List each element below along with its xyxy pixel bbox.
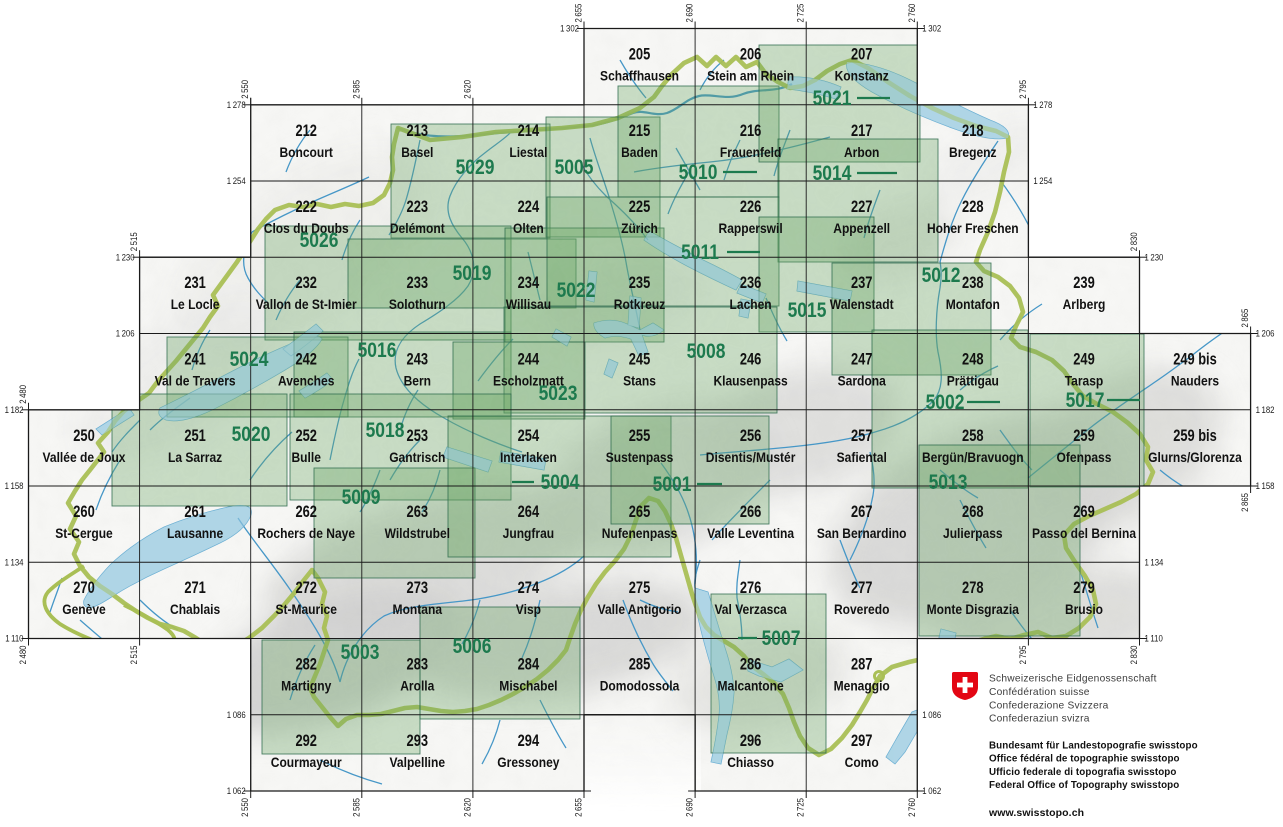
svg-text:Basel: Basel [401, 144, 433, 160]
svg-text:258: 258 [962, 427, 984, 445]
svg-text:283: 283 [407, 656, 429, 674]
svg-text:1 302: 1 302 [922, 24, 941, 35]
svg-text:Liestal: Liestal [509, 144, 547, 160]
svg-text:Courmayeur: Courmayeur [271, 754, 342, 770]
svg-text:St-Cergue: St-Cergue [55, 525, 113, 541]
svg-text:282: 282 [295, 656, 317, 674]
svg-text:Passo del Bernina: Passo del Bernina [1032, 525, 1136, 541]
svg-text:5023: 5023 [539, 382, 578, 405]
svg-text:273: 273 [407, 579, 429, 597]
svg-text:297: 297 [851, 732, 873, 750]
svg-text:286: 286 [740, 656, 762, 674]
svg-text:222: 222 [295, 198, 317, 216]
svg-text:253: 253 [407, 427, 429, 445]
svg-text:2 725: 2 725 [796, 798, 807, 817]
svg-text:276: 276 [740, 579, 762, 597]
svg-text:206: 206 [740, 46, 762, 64]
svg-text:La Sarraz: La Sarraz [168, 449, 222, 465]
svg-text:5011: 5011 [681, 241, 719, 264]
svg-text:1 230: 1 230 [116, 252, 135, 263]
svg-text:259 bis: 259 bis [1173, 427, 1217, 445]
svg-text:2 795: 2 795 [1018, 646, 1029, 665]
svg-text:271: 271 [184, 579, 206, 597]
svg-text:Confederazione Svizzera: Confederazione Svizzera [989, 700, 1109, 711]
svg-text:1 302: 1 302 [560, 24, 579, 35]
svg-text:292: 292 [295, 732, 317, 750]
svg-text:5021: 5021 [813, 87, 852, 110]
svg-text:Klausenpass: Klausenpass [713, 373, 787, 389]
svg-text:2 515: 2 515 [129, 646, 140, 665]
svg-text:249: 249 [1073, 351, 1095, 369]
svg-text:Brusio: Brusio [1065, 601, 1103, 617]
svg-text:241: 241 [184, 351, 206, 369]
svg-text:2 865: 2 865 [1240, 309, 1251, 328]
svg-text:5022: 5022 [557, 279, 596, 302]
svg-text:Walenstadt: Walenstadt [830, 296, 894, 312]
svg-text:2 690: 2 690 [685, 798, 696, 817]
svg-text:294: 294 [518, 732, 540, 750]
svg-text:Chiasso: Chiasso [727, 754, 774, 770]
svg-text:5006: 5006 [453, 635, 492, 658]
svg-text:216: 216 [740, 122, 762, 140]
svg-text:251: 251 [184, 427, 206, 445]
svg-text:226: 226 [740, 198, 762, 216]
svg-text:5010: 5010 [679, 161, 718, 184]
svg-text:Tarasp: Tarasp [1065, 373, 1104, 389]
svg-text:266: 266 [740, 503, 762, 521]
svg-text:Valpelline: Valpelline [390, 754, 446, 770]
svg-text:217: 217 [851, 122, 873, 140]
svg-text:Valle Leventina: Valle Leventina [707, 525, 794, 541]
svg-text:265: 265 [629, 503, 651, 521]
svg-text:255: 255 [629, 427, 651, 445]
svg-text:Ofenpass: Ofenpass [1057, 449, 1112, 465]
svg-text:St-Maurice: St-Maurice [275, 601, 337, 617]
svg-text:1 278: 1 278 [227, 100, 246, 111]
svg-text:272: 272 [295, 579, 317, 597]
svg-text:Confédération suisse: Confédération suisse [989, 687, 1090, 698]
svg-text:5020: 5020 [232, 423, 271, 446]
svg-text:5012: 5012 [922, 264, 961, 287]
svg-text:5018: 5018 [366, 419, 405, 442]
svg-text:Arbon: Arbon [844, 144, 879, 160]
svg-text:Interlaken: Interlaken [500, 449, 557, 465]
svg-text:Montafon: Montafon [946, 296, 1000, 312]
svg-text:Visp: Visp [516, 601, 541, 617]
svg-text:Genève: Genève [62, 601, 106, 617]
svg-text:Federal Office of Topography s: Federal Office of Topography swisstopo [989, 780, 1179, 791]
svg-text:Chablais: Chablais [170, 601, 220, 617]
svg-text:2 550: 2 550 [240, 80, 251, 99]
svg-text:Bergün/Bravuogn: Bergün/Bravuogn [922, 449, 1024, 465]
svg-text:Disentis/Mustér: Disentis/Mustér [706, 449, 796, 465]
svg-text:224: 224 [518, 198, 540, 216]
svg-text:242: 242 [295, 351, 317, 369]
svg-text:Valle Antigorio: Valle Antigorio [598, 601, 682, 617]
svg-text:Baden: Baden [621, 144, 658, 160]
svg-text:231: 231 [184, 274, 206, 292]
svg-text:257: 257 [851, 427, 873, 445]
svg-text:1 230: 1 230 [1145, 252, 1164, 263]
svg-text:2 655: 2 655 [574, 4, 585, 23]
svg-text:Vallée de Joux: Vallée de Joux [43, 449, 126, 465]
svg-text:5016: 5016 [358, 339, 397, 362]
svg-text:Safiental: Safiental [837, 449, 887, 465]
svg-text:5017: 5017 [1066, 389, 1105, 412]
svg-text:239: 239 [1073, 274, 1095, 292]
svg-text:Bundesamt für Landestopografie: Bundesamt für Landestopografie swisstopo [989, 741, 1198, 752]
svg-text:2 865: 2 865 [1240, 493, 1251, 512]
svg-text:Domodossola: Domodossola [600, 678, 680, 694]
svg-text:Como: Como [845, 754, 879, 770]
svg-text:1 086: 1 086 [922, 710, 941, 721]
svg-text:Avenches: Avenches [278, 373, 335, 389]
svg-text:205: 205 [629, 46, 651, 64]
svg-text:269: 269 [1073, 503, 1095, 521]
svg-text:261: 261 [184, 503, 206, 521]
svg-text:2 515: 2 515 [129, 232, 140, 251]
svg-text:Val Verzasca: Val Verzasca [714, 601, 786, 617]
svg-text:2 620: 2 620 [462, 80, 473, 99]
svg-text:Delémont: Delémont [390, 220, 445, 236]
svg-text:237: 237 [851, 274, 873, 292]
svg-text:214: 214 [518, 122, 540, 140]
svg-text:256: 256 [740, 427, 762, 445]
svg-text:5003: 5003 [341, 641, 380, 664]
svg-text:213: 213 [407, 122, 429, 140]
svg-text:Gressoney: Gressoney [497, 754, 559, 770]
svg-text:270: 270 [73, 579, 95, 597]
svg-text:264: 264 [518, 503, 540, 521]
svg-text:227: 227 [851, 198, 873, 216]
svg-text:1 134: 1 134 [5, 558, 24, 569]
svg-text:2 760: 2 760 [907, 798, 918, 817]
svg-text:Office fédéral de topographie: Office fédéral de topographie swisstopo [989, 754, 1180, 765]
svg-text:235: 235 [629, 274, 651, 292]
svg-text:1 062: 1 062 [922, 786, 941, 797]
svg-text:262: 262 [295, 503, 317, 521]
svg-text:285: 285 [629, 656, 651, 674]
svg-text:Konstanz: Konstanz [835, 68, 889, 84]
svg-text:5019: 5019 [453, 262, 492, 285]
svg-text:2 760: 2 760 [907, 4, 918, 23]
svg-text:207: 207 [851, 46, 873, 64]
svg-text:Stans: Stans [623, 373, 656, 389]
svg-text:Lausanne: Lausanne [167, 525, 223, 541]
svg-text:225: 225 [629, 198, 651, 216]
svg-text:1 182: 1 182 [5, 405, 24, 416]
svg-text:243: 243 [407, 351, 429, 369]
svg-text:Val de Travers: Val de Travers [155, 373, 236, 389]
svg-text:Wildstrubel: Wildstrubel [385, 525, 450, 541]
svg-text:Hoher Freschen: Hoher Freschen [927, 220, 1019, 236]
svg-text:Roveredo: Roveredo [834, 601, 890, 617]
svg-text:212: 212 [295, 122, 317, 140]
svg-text:Bern: Bern [404, 373, 431, 389]
svg-text:Boncourt: Boncourt [279, 144, 333, 160]
svg-text:268: 268 [962, 503, 984, 521]
svg-text:San Bernardino: San Bernardino [817, 525, 907, 541]
svg-text:254: 254 [518, 427, 540, 445]
svg-text:284: 284 [518, 656, 540, 674]
svg-text:1 110: 1 110 [1145, 634, 1163, 645]
svg-text:260: 260 [73, 503, 95, 521]
svg-text:Schweizerische Eidgenossenscha: Schweizerische Eidgenossenschaft [989, 674, 1157, 685]
svg-text:5024: 5024 [230, 348, 269, 371]
svg-text:Montana: Montana [393, 601, 443, 617]
svg-text:1 134: 1 134 [1145, 558, 1164, 569]
svg-text:Rapperswil: Rapperswil [719, 220, 783, 236]
svg-text:234: 234 [518, 274, 540, 292]
svg-text:263: 263 [407, 503, 429, 521]
svg-text:Willisau: Willisau [506, 296, 551, 312]
svg-text:2 690: 2 690 [685, 4, 696, 23]
svg-text:2 480: 2 480 [18, 385, 29, 404]
svg-text:287: 287 [851, 656, 873, 674]
svg-text:5014: 5014 [813, 162, 852, 185]
svg-text:Frauenfeld: Frauenfeld [720, 144, 782, 160]
svg-text:1 278: 1 278 [1033, 100, 1052, 111]
svg-text:238: 238 [962, 274, 984, 292]
svg-text:Menaggio: Menaggio [834, 678, 890, 694]
svg-text:5001: 5001 [653, 473, 692, 496]
svg-text:248: 248 [962, 351, 984, 369]
svg-text:Prättigau: Prättigau [947, 373, 999, 389]
svg-text:5009: 5009 [342, 486, 381, 509]
svg-text:Rotkreuz: Rotkreuz [614, 296, 666, 312]
svg-text:Jungfrau: Jungfrau [503, 525, 555, 541]
svg-text:5008: 5008 [687, 340, 726, 363]
svg-text:1 206: 1 206 [116, 329, 135, 340]
svg-text:Lachen: Lachen [730, 296, 772, 312]
svg-text:2 795: 2 795 [1018, 80, 1029, 99]
svg-text:252: 252 [295, 427, 317, 445]
svg-text:Malcantone: Malcantone [718, 678, 784, 694]
svg-text:279: 279 [1073, 579, 1095, 597]
svg-text:Le Locle: Le Locle [171, 296, 220, 312]
svg-text:249 bis: 249 bis [1173, 351, 1217, 369]
svg-text:2 480: 2 480 [18, 646, 29, 665]
svg-text:1 086: 1 086 [227, 710, 246, 721]
svg-text:Arlberg: Arlberg [1063, 296, 1106, 312]
svg-text:2 620: 2 620 [462, 798, 473, 817]
svg-text:250: 250 [73, 427, 95, 445]
svg-text:2 655: 2 655 [574, 798, 585, 817]
svg-text:1 062: 1 062 [227, 786, 246, 797]
svg-text:5015: 5015 [788, 299, 827, 322]
svg-text:Arolla: Arolla [400, 678, 434, 694]
svg-text:223: 223 [407, 198, 429, 216]
svg-text:2 830: 2 830 [1129, 646, 1140, 665]
svg-text:Schaffhausen: Schaffhausen [600, 68, 679, 84]
svg-text:5005: 5005 [555, 156, 594, 179]
svg-text:1 254: 1 254 [227, 176, 246, 187]
svg-text:1 158: 1 158 [1256, 481, 1275, 492]
svg-text:5029: 5029 [456, 156, 495, 179]
svg-text:Nufenenpass: Nufenenpass [602, 525, 678, 541]
svg-text:5002: 5002 [926, 391, 965, 414]
svg-text:Nauders: Nauders [1171, 373, 1219, 389]
svg-text:Bulle: Bulle [292, 449, 322, 465]
svg-text:293: 293 [407, 732, 429, 750]
svg-text:2 725: 2 725 [796, 4, 807, 23]
svg-text:233: 233 [407, 274, 429, 292]
svg-text:236: 236 [740, 274, 762, 292]
svg-text:244: 244 [518, 351, 540, 369]
svg-text:259: 259 [1073, 427, 1095, 445]
svg-text:5026: 5026 [300, 229, 339, 252]
svg-text:246: 246 [740, 351, 762, 369]
svg-text:2 585: 2 585 [351, 80, 362, 99]
svg-text:Glurns/Glorenza: Glurns/Glorenza [1148, 449, 1242, 465]
svg-text:Sardona: Sardona [838, 373, 886, 389]
svg-text:296: 296 [740, 732, 762, 750]
svg-text:Gantrisch: Gantrisch [389, 449, 445, 465]
svg-text:232: 232 [295, 274, 317, 292]
svg-text:5007: 5007 [762, 627, 801, 650]
svg-text:5013: 5013 [929, 471, 968, 494]
svg-text:5004: 5004 [541, 471, 580, 494]
svg-text:274: 274 [518, 579, 540, 597]
svg-text:218: 218 [962, 122, 984, 140]
svg-text:1 254: 1 254 [1033, 176, 1052, 187]
svg-text:277: 277 [851, 579, 873, 597]
svg-text:2 585: 2 585 [351, 798, 362, 817]
svg-text:Confederaziun svizra: Confederaziun svizra [989, 714, 1090, 725]
svg-text:278: 278 [962, 579, 984, 597]
svg-text:Vallon de St-Imier: Vallon de St-Imier [256, 296, 357, 312]
svg-text:Sustenpass: Sustenpass [606, 449, 674, 465]
svg-text:Olten: Olten [513, 220, 544, 236]
svg-text:275: 275 [629, 579, 651, 597]
svg-text:Martigny: Martigny [281, 678, 331, 694]
svg-text:Stein am Rhein: Stein am Rhein [707, 68, 794, 84]
svg-text:267: 267 [851, 503, 873, 521]
svg-text:Appenzell: Appenzell [833, 220, 890, 236]
svg-text:1 206: 1 206 [1256, 329, 1275, 340]
svg-text:2 830: 2 830 [1129, 232, 1140, 251]
svg-text:Mischabel: Mischabel [499, 678, 557, 694]
svg-text:www.swisstopo.ch: www.swisstopo.ch [988, 807, 1084, 819]
svg-text:Rochers de Naye: Rochers de Naye [257, 525, 355, 541]
svg-text:245: 245 [629, 351, 651, 369]
svg-text:215: 215 [629, 122, 651, 140]
svg-text:Solothurn: Solothurn [389, 296, 446, 312]
svg-text:1 158: 1 158 [5, 481, 24, 492]
svg-text:1 110: 1 110 [5, 634, 23, 645]
svg-text:Ufficio federale di topografia: Ufficio federale di topografia swisstopo [989, 767, 1176, 778]
svg-text:Julierpass: Julierpass [943, 525, 1003, 541]
svg-text:Zürich: Zürich [621, 220, 658, 236]
svg-text:247: 247 [851, 351, 873, 369]
svg-text:Monte Disgrazia: Monte Disgrazia [927, 601, 1019, 617]
svg-text:2 550: 2 550 [240, 798, 251, 817]
svg-text:Bregenz: Bregenz [949, 144, 997, 160]
svg-text:228: 228 [962, 198, 984, 216]
svg-text:1 182: 1 182 [1256, 405, 1275, 416]
